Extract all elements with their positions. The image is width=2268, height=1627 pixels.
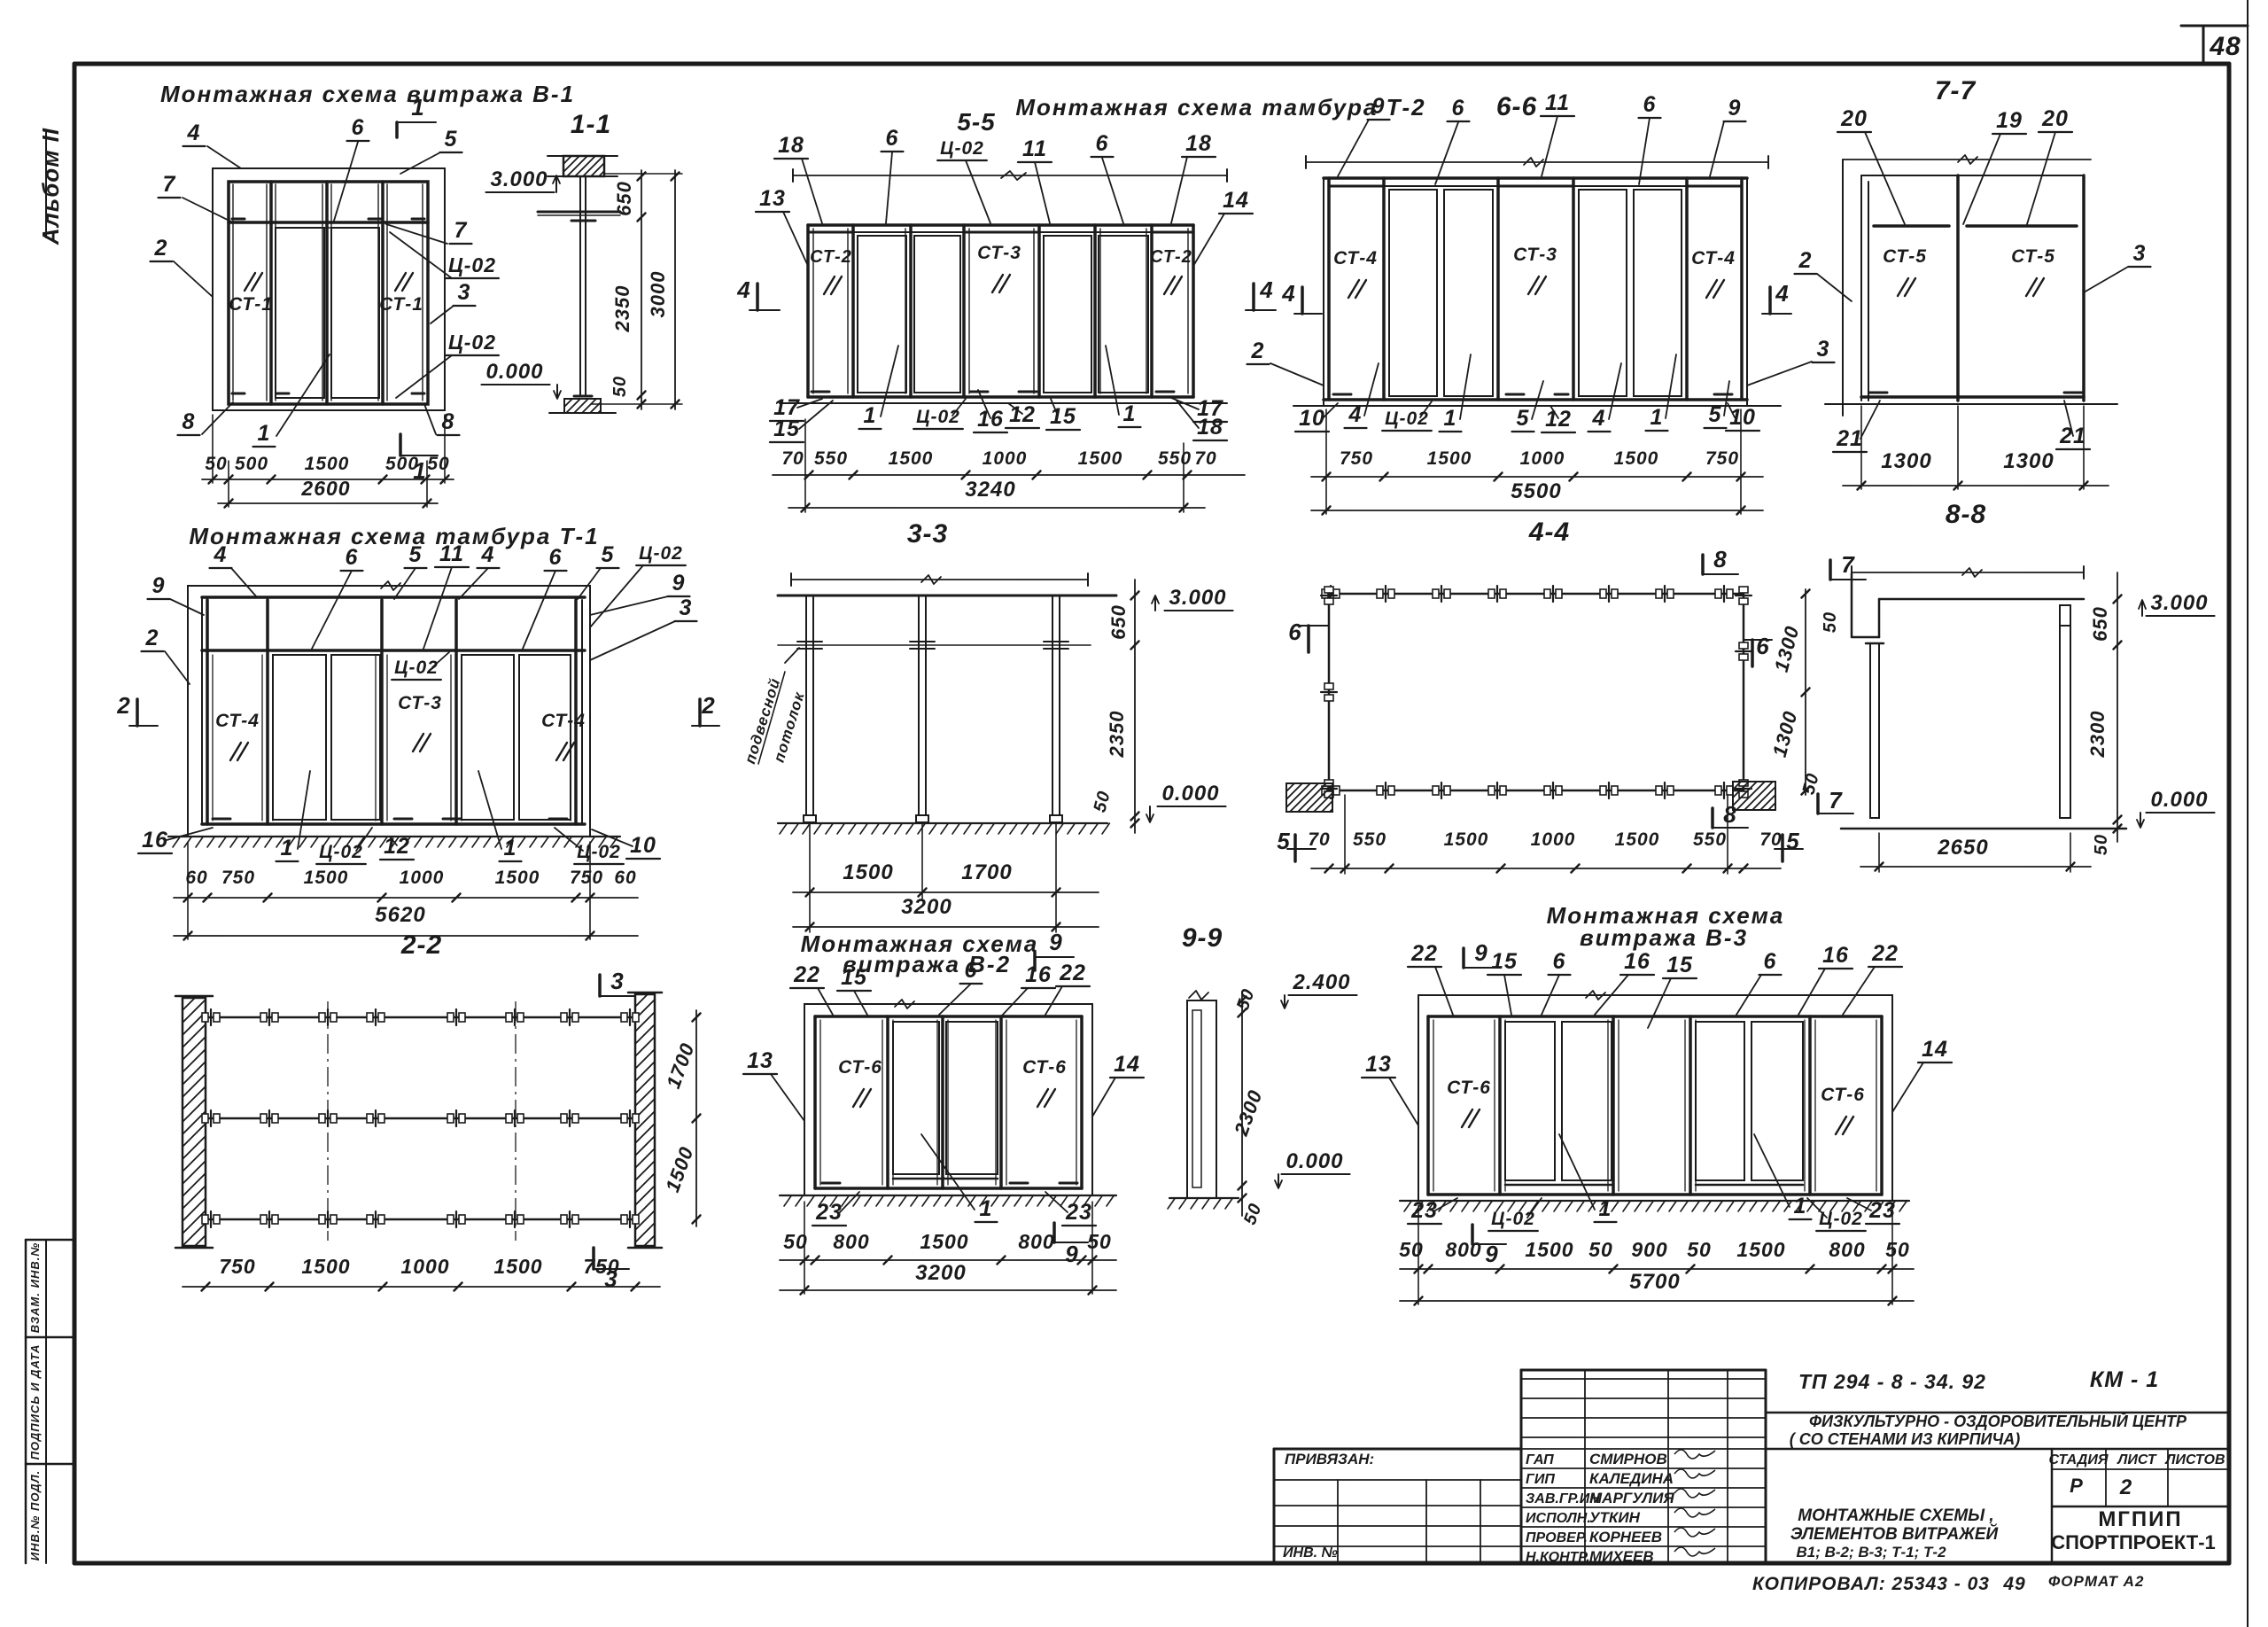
svg-text:23: 23 [1410, 1198, 1438, 1223]
svg-text:СТ-3: СТ-3 [398, 693, 442, 713]
svg-text:4: 4 [214, 542, 228, 567]
svg-text:1: 1 [411, 94, 424, 121]
svg-text:5: 5 [1786, 828, 1799, 854]
svg-text:70: 70 [781, 448, 804, 469]
svg-text:800: 800 [833, 1230, 869, 1253]
svg-text:1500: 1500 [1525, 1238, 1573, 1261]
svg-text:1000: 1000 [1520, 448, 1565, 469]
svg-text:СТ-3: СТ-3 [1513, 245, 1557, 265]
svg-text:3: 3 [610, 968, 624, 994]
svg-text:ИСПОЛН.: ИСПОЛН. [1526, 1511, 1591, 1526]
svg-text:500: 500 [235, 454, 268, 474]
svg-text:550: 550 [814, 448, 848, 469]
svg-text:18: 18 [778, 133, 804, 158]
svg-text:ЭЛЕМЕНТОВ ВИТРАЖЕЙ: ЭЛЕМЕНТОВ ВИТРАЖЕЙ [1790, 1524, 1999, 1544]
svg-text:1000: 1000 [1531, 829, 1576, 850]
svg-text:1300: 1300 [1770, 623, 1804, 674]
svg-text:0.000: 0.000 [2150, 788, 2208, 812]
svg-text:В1; В-2; В-3; Т-1; Т-2: В1; В-2; В-3; Т-1; Т-2 [1796, 1544, 1946, 1561]
svg-text:ТП 294 - 8 - 34. 92: ТП 294 - 8 - 34. 92 [1798, 1370, 1986, 1393]
svg-text:50: 50 [1588, 1238, 1613, 1261]
svg-text:2: 2 [2119, 1475, 2132, 1499]
svg-text:9: 9 [1372, 94, 1386, 119]
svg-text:650: 650 [613, 181, 635, 216]
svg-text:19: 19 [1996, 108, 2023, 133]
svg-text:750: 750 [583, 1255, 619, 1278]
svg-text:3: 3 [1817, 337, 1830, 362]
svg-text:18: 18 [1197, 415, 1223, 440]
svg-text:23: 23 [815, 1200, 843, 1225]
svg-text:1700: 1700 [662, 1039, 699, 1091]
svg-text:2650: 2650 [1937, 836, 1988, 860]
svg-text:50: 50 [1399, 1238, 1424, 1261]
svg-text:0.000: 0.000 [485, 360, 543, 384]
svg-text:9-9: 9-9 [1182, 923, 1223, 953]
svg-text:1500: 1500 [1427, 448, 1472, 469]
svg-text:МАРГУЛИЯ: МАРГУЛИЯ [1589, 1490, 1674, 1506]
svg-text:2: 2 [701, 692, 715, 719]
svg-text:14: 14 [1223, 188, 1249, 213]
svg-text:6: 6 [352, 115, 365, 140]
svg-text:ГАП: ГАП [1526, 1452, 1554, 1467]
svg-text:5: 5 [1709, 402, 1722, 427]
svg-text:8-8: 8-8 [1946, 500, 1986, 529]
svg-text:ВЗАМ. ИНВ.№: ВЗАМ. ИНВ.№ [28, 1242, 42, 1334]
svg-text:5: 5 [445, 127, 458, 152]
svg-text:1300: 1300 [1768, 708, 1802, 759]
svg-text:5: 5 [1277, 828, 1290, 854]
svg-text:Ц-02: Ц-02 [1385, 409, 1429, 429]
svg-text:1500: 1500 [661, 1143, 698, 1195]
svg-text:СТ-2: СТ-2 [810, 247, 852, 267]
svg-text:550: 550 [1158, 448, 1192, 469]
svg-text:ЛИСТОВ: ЛИСТОВ [2164, 1452, 2225, 1467]
svg-text:КМ - 1: КМ - 1 [2090, 1367, 2159, 1392]
svg-text:ИНВ.№ ПОДЛ.: ИНВ.№ ПОДЛ. [28, 1470, 42, 1561]
svg-text:1: 1 [864, 403, 877, 428]
svg-text:Ц-02: Ц-02 [639, 543, 683, 564]
svg-text:8: 8 [1723, 801, 1736, 828]
svg-text:1: 1 [281, 836, 294, 860]
svg-text:5700: 5700 [1629, 1270, 1680, 1294]
svg-text:СТАДИЯ: СТАДИЯ [2049, 1452, 2109, 1467]
svg-text:2: 2 [1251, 339, 1265, 363]
svg-text:УТКИН: УТКИН [1589, 1509, 1641, 1526]
svg-text:СМИРНОВ: СМИРНОВ [1589, 1451, 1667, 1467]
svg-text:22: 22 [793, 962, 820, 987]
svg-text:4: 4 [187, 121, 201, 145]
svg-text:3.000: 3.000 [1169, 586, 1226, 610]
svg-text:10: 10 [1299, 406, 1325, 431]
svg-text:Ц-02: Ц-02 [448, 331, 496, 354]
svg-text:КАЛЕДИНА: КАЛЕДИНА [1589, 1470, 1674, 1487]
svg-text:1300: 1300 [1881, 449, 1931, 473]
svg-text:3240: 3240 [965, 478, 1015, 502]
svg-text:750: 750 [219, 1255, 255, 1278]
svg-text:3: 3 [680, 596, 693, 620]
svg-text:9: 9 [672, 571, 686, 596]
svg-text:6: 6 [1452, 96, 1465, 121]
svg-text:2600: 2600 [300, 477, 350, 500]
svg-text:50: 50 [2092, 834, 2111, 855]
svg-text:800: 800 [1829, 1238, 1865, 1261]
svg-text:1500: 1500 [495, 868, 540, 888]
svg-text:1500: 1500 [920, 1230, 968, 1253]
svg-text:ИНВ. №: ИНВ. № [1283, 1545, 1339, 1561]
svg-text:1500: 1500 [889, 448, 934, 469]
svg-text:50: 50 [1885, 1238, 1910, 1261]
svg-text:1500: 1500 [1614, 448, 1659, 469]
svg-text:1: 1 [504, 836, 517, 860]
svg-text:5-5: 5-5 [957, 108, 995, 136]
svg-text:3200: 3200 [915, 1261, 966, 1285]
svg-text:13: 13 [747, 1048, 773, 1073]
svg-text:22: 22 [1410, 941, 1438, 966]
svg-text:500: 500 [385, 454, 419, 474]
svg-text:6: 6 [1764, 949, 1777, 974]
svg-text:ПРОВЕР.: ПРОВЕР. [1526, 1530, 1588, 1545]
svg-text:2350: 2350 [1106, 711, 1128, 759]
svg-text:550: 550 [1353, 829, 1386, 850]
svg-text:50: 50 [205, 454, 227, 474]
svg-text:8: 8 [1713, 546, 1727, 572]
svg-text:16: 16 [1822, 943, 1849, 968]
svg-text:8: 8 [183, 409, 196, 434]
svg-text:800: 800 [1445, 1238, 1481, 1261]
svg-text:Ц-02: Ц-02 [1819, 1209, 1863, 1229]
svg-text:7: 7 [454, 218, 468, 243]
svg-text:СТ-6: СТ-6 [1447, 1078, 1491, 1098]
svg-text:12: 12 [1545, 407, 1572, 432]
svg-text:7: 7 [1829, 787, 1843, 813]
svg-text:ГИП: ГИП [1526, 1472, 1555, 1487]
svg-text:50: 50 [1798, 771, 1823, 797]
svg-text:5500: 5500 [1511, 479, 1561, 503]
svg-text:60: 60 [185, 868, 207, 888]
svg-text:50: 50 [427, 454, 449, 474]
svg-text:11: 11 [439, 541, 464, 566]
svg-text:1: 1 [258, 421, 271, 446]
svg-text:13: 13 [759, 186, 786, 211]
svg-text:9: 9 [1728, 96, 1742, 121]
svg-text:5: 5 [602, 542, 615, 567]
svg-text:1500: 1500 [1615, 829, 1660, 850]
svg-text:2300: 2300 [2086, 711, 2109, 759]
svg-text:2: 2 [116, 692, 130, 719]
svg-text:0.000: 0.000 [1161, 782, 1219, 806]
svg-text:550: 550 [1693, 829, 1727, 850]
svg-text:СТ-6: СТ-6 [1821, 1085, 1865, 1105]
svg-text:18: 18 [1185, 131, 1212, 156]
svg-text:3: 3 [458, 280, 471, 305]
svg-text:60: 60 [614, 868, 636, 888]
svg-text:6: 6 [1288, 619, 1301, 645]
svg-text:Н.КОНТР.: Н.КОНТР. [1526, 1550, 1590, 1565]
svg-text:10: 10 [630, 833, 656, 858]
svg-text:900: 900 [1631, 1238, 1667, 1261]
svg-text:МИХЕЕВ: МИХЕЕВ [1589, 1548, 1654, 1565]
svg-text:4: 4 [1592, 406, 1606, 431]
svg-text:( СО СТЕНАМИ ИЗ КИРПИЧА): ( СО СТЕНАМИ ИЗ КИРПИЧА) [1790, 1430, 2020, 1448]
svg-text:1: 1 [980, 1196, 993, 1221]
svg-text:49: 49 [2002, 1574, 2025, 1594]
svg-text:21: 21 [1836, 426, 1863, 451]
svg-text:6-6: 6-6 [1496, 92, 1537, 121]
svg-text:4: 4 [1281, 280, 1295, 307]
svg-text:9: 9 [1065, 1241, 1078, 1267]
svg-text:1-1: 1-1 [571, 110, 611, 139]
svg-text:МОНТАЖНЫЕ СХЕМЫ ,: МОНТАЖНЫЕ СХЕМЫ , [1798, 1506, 1993, 1525]
svg-text:5: 5 [409, 542, 423, 567]
svg-text:3: 3 [2133, 241, 2147, 266]
svg-text:15: 15 [841, 965, 867, 990]
svg-text:6: 6 [1643, 92, 1657, 117]
svg-text:СТ-5: СТ-5 [2011, 246, 2055, 267]
svg-text:4: 4 [1259, 276, 1273, 303]
svg-text:16: 16 [977, 407, 1004, 432]
svg-text:витража В-3: витража В-3 [1580, 924, 1748, 951]
svg-text:11: 11 [1022, 136, 1047, 161]
svg-text:15: 15 [1491, 949, 1518, 974]
svg-text:ФОРМАТ А2: ФОРМАТ А2 [2048, 1573, 2144, 1590]
svg-text:1700: 1700 [961, 860, 1012, 884]
svg-text:СТ-3: СТ-3 [977, 243, 1021, 263]
svg-text:9: 9 [152, 573, 166, 598]
svg-text:15: 15 [1666, 953, 1693, 977]
svg-text:16: 16 [1025, 962, 1052, 987]
svg-text:1500: 1500 [304, 868, 349, 888]
svg-text:50: 50 [610, 376, 630, 397]
svg-text:3000: 3000 [647, 271, 669, 318]
svg-text:1000: 1000 [400, 1255, 449, 1278]
svg-text:4: 4 [481, 542, 495, 567]
svg-text:9: 9 [1474, 939, 1487, 966]
svg-text:1500: 1500 [1736, 1238, 1785, 1261]
svg-text:11: 11 [1545, 90, 1570, 115]
svg-text:1500: 1500 [1078, 448, 1123, 469]
svg-text:Ц-02: Ц-02 [319, 842, 363, 862]
svg-text:КОПИРОВАЛ: 25343 - 03: КОПИРОВАЛ: 25343 - 03 [1752, 1574, 1990, 1594]
svg-text:50: 50 [1233, 986, 1259, 1013]
svg-text:6: 6 [346, 545, 359, 570]
svg-text:750: 750 [1705, 448, 1739, 469]
svg-text:70: 70 [1759, 829, 1782, 850]
svg-text:Ц-02: Ц-02 [577, 842, 621, 862]
svg-text:70: 70 [1308, 829, 1330, 850]
svg-text:МГПИП: МГПИП [2098, 1507, 2182, 1531]
svg-text:16: 16 [142, 828, 168, 852]
svg-text:СТ-2: СТ-2 [1150, 247, 1192, 267]
svg-text:4: 4 [736, 276, 750, 303]
svg-text:4: 4 [1775, 280, 1789, 307]
svg-text:50: 50 [1240, 1201, 1266, 1227]
svg-text:650: 650 [1107, 604, 1130, 640]
svg-text:14: 14 [1922, 1037, 1948, 1062]
svg-text:9: 9 [1049, 929, 1062, 955]
svg-text:2-2: 2-2 [400, 930, 442, 960]
svg-text:6: 6 [549, 545, 563, 570]
svg-text:1000: 1000 [400, 868, 445, 888]
svg-text:6: 6 [1096, 131, 1109, 156]
svg-text:0.000: 0.000 [1285, 1149, 1343, 1173]
svg-text:2350: 2350 [611, 285, 633, 333]
svg-text:1: 1 [1794, 1194, 1807, 1218]
svg-text:5: 5 [1517, 406, 1530, 431]
svg-text:ФИЗКУЛЬТУРНО - ОЗДОРОВИТЕЛЬНЫЙ: ФИЗКУЛЬТУРНО - ОЗДОРОВИТЕЛЬНЫЙ ЦЕНТР [1809, 1412, 2187, 1430]
svg-text:4: 4 [1348, 402, 1363, 427]
svg-text:1500: 1500 [305, 454, 350, 474]
svg-text:СТ-6: СТ-6 [1022, 1057, 1067, 1078]
svg-text:6: 6 [1756, 633, 1769, 659]
svg-text:9: 9 [1485, 1241, 1498, 1267]
svg-text:50: 50 [1821, 611, 1840, 633]
svg-text:70: 70 [1194, 448, 1216, 469]
svg-text:Монтажная схема тамбура Т-2: Монтажная схема тамбура Т-2 [1015, 94, 1425, 121]
svg-text:750: 750 [221, 868, 255, 888]
svg-text:1500: 1500 [843, 860, 893, 884]
svg-text:СТ-4: СТ-4 [1691, 248, 1736, 269]
svg-text:Ц-02: Ц-02 [916, 407, 960, 427]
svg-text:12: 12 [384, 834, 410, 859]
svg-text:2.400: 2.400 [1292, 970, 1350, 994]
svg-text:16: 16 [1624, 949, 1651, 974]
svg-text:СТ-4: СТ-4 [215, 711, 260, 731]
svg-text:22: 22 [1871, 941, 1899, 966]
svg-text:СТ-1: СТ-1 [379, 294, 423, 315]
svg-text:ЛИСТ: ЛИСТ [2117, 1452, 2156, 1467]
svg-text:20: 20 [1840, 106, 1868, 131]
svg-text:СТ-4: СТ-4 [541, 711, 586, 731]
svg-text:7-7: 7-7 [1935, 76, 1977, 105]
svg-text:СТ-1: СТ-1 [229, 294, 273, 315]
svg-text:Ц-02: Ц-02 [448, 253, 496, 276]
svg-text:1: 1 [1599, 1196, 1612, 1221]
svg-text:800: 800 [1018, 1230, 1054, 1253]
svg-text:23: 23 [1065, 1200, 1092, 1225]
svg-text:СТ-4: СТ-4 [1333, 248, 1378, 269]
svg-text:КОРНЕЕВ: КОРНЕЕВ [1589, 1529, 1662, 1545]
svg-text:ПРИВЯЗАН:: ПРИВЯЗАН: [1285, 1451, 1374, 1467]
svg-text:10: 10 [1729, 405, 1756, 430]
svg-text:20: 20 [2041, 106, 2069, 131]
svg-text:1500: 1500 [301, 1255, 350, 1278]
svg-text:650: 650 [2089, 606, 2111, 642]
svg-text:2: 2 [1798, 248, 1813, 273]
svg-text:6: 6 [886, 126, 899, 151]
svg-text:7: 7 [163, 172, 176, 197]
svg-text:14: 14 [1114, 1052, 1140, 1077]
svg-text:2300: 2300 [1230, 1086, 1267, 1139]
svg-text:7: 7 [1841, 551, 1855, 578]
svg-text:13: 13 [1365, 1052, 1392, 1077]
svg-text:6: 6 [1553, 949, 1566, 974]
svg-text:3.000: 3.000 [490, 167, 548, 191]
svg-text:Ц-02: Ц-02 [1491, 1209, 1535, 1229]
svg-text:8: 8 [442, 409, 455, 434]
svg-text:СПОРТПРОЕКТ-1: СПОРТПРОЕКТ-1 [2051, 1531, 2216, 1553]
svg-text:750: 750 [570, 868, 603, 888]
svg-text:СТ-6: СТ-6 [838, 1057, 882, 1078]
svg-text:ПОДПИСЬ И ДАТА: ПОДПИСЬ И ДАТА [28, 1344, 42, 1460]
svg-text:1: 1 [1123, 401, 1137, 426]
svg-text:2: 2 [154, 236, 168, 261]
svg-text:15: 15 [773, 416, 800, 441]
svg-text:1300: 1300 [2003, 449, 2054, 473]
svg-text:Ц-02: Ц-02 [940, 138, 984, 159]
svg-text:СТ-5: СТ-5 [1883, 246, 1927, 267]
svg-text:Монтажная схема витража В-1: Монтажная схема витража В-1 [160, 81, 575, 107]
svg-text:1500: 1500 [493, 1255, 542, 1278]
svg-text:750: 750 [1340, 448, 1373, 469]
svg-text:Монтажная схема тамбура: Монтажная схема тамбура Т-1 [189, 523, 599, 549]
svg-text:1: 1 [1444, 406, 1457, 431]
svg-text:48: 48 [2209, 32, 2241, 61]
svg-text:22: 22 [1059, 961, 1086, 985]
svg-text:2: 2 [145, 626, 159, 650]
svg-text:Альбом II: Альбом II [37, 128, 64, 245]
svg-text:4-4: 4-4 [1528, 518, 1570, 547]
svg-text:5620: 5620 [375, 903, 425, 927]
svg-text:1000: 1000 [983, 448, 1028, 469]
svg-text:витража В-2: витража В-2 [843, 951, 1011, 977]
svg-text:3.000: 3.000 [2150, 591, 2208, 615]
svg-text:1500: 1500 [1444, 829, 1489, 850]
svg-text:50: 50 [1090, 789, 1115, 814]
svg-text:Р: Р [2070, 1475, 2084, 1497]
svg-text:1: 1 [1651, 405, 1664, 430]
svg-text:50: 50 [1087, 1230, 1112, 1253]
svg-text:50: 50 [1687, 1238, 1712, 1261]
svg-text:3-3: 3-3 [907, 519, 948, 549]
svg-text:3200: 3200 [901, 895, 951, 919]
svg-text:6: 6 [965, 958, 978, 983]
